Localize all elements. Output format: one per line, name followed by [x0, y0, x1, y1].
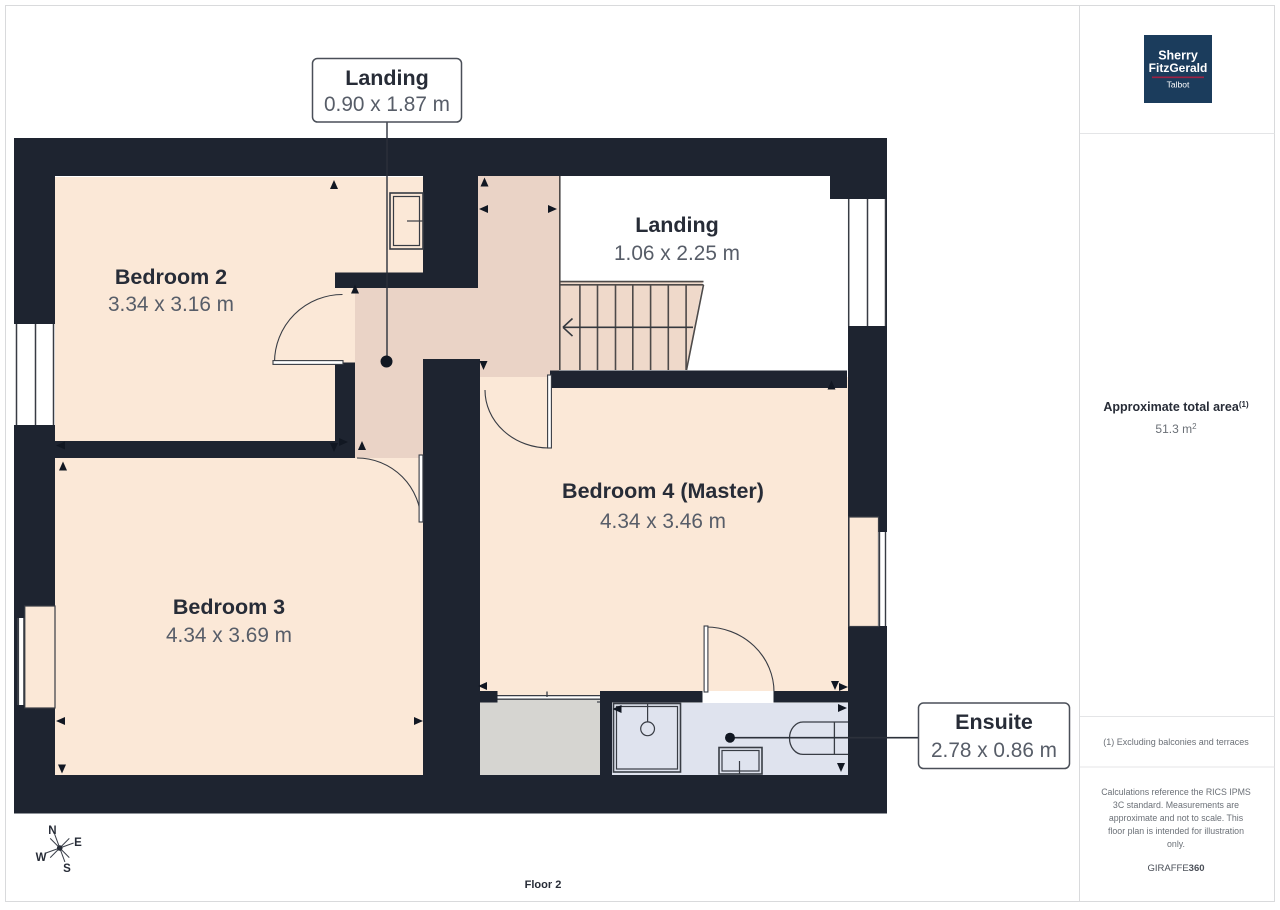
svg-text:FitzGerald: FitzGerald — [1149, 61, 1208, 75]
svg-text:Talbot: Talbot — [1167, 80, 1190, 90]
svg-text:(1) Excluding balconies and te: (1) Excluding balconies and terraces — [1103, 737, 1249, 747]
svg-text:2.78 x 0.86 m: 2.78 x 0.86 m — [931, 739, 1057, 762]
svg-text:51.3 m2: 51.3 m2 — [1155, 422, 1197, 436]
svg-text:4.34 x 3.69 m: 4.34 x 3.69 m — [166, 624, 292, 647]
svg-text:only.: only. — [1167, 839, 1185, 849]
svg-text:W: W — [36, 852, 47, 864]
svg-text:approximate and not to scale.: approximate and not to scale. This — [1109, 813, 1244, 823]
svg-text:Landing: Landing — [345, 66, 429, 90]
svg-text:Calculations reference the RIC: Calculations reference the RICS IPMS — [1101, 787, 1251, 797]
svg-text:E: E — [74, 837, 82, 849]
svg-text:floor plan is intended for ill: floor plan is intended for illustration — [1108, 826, 1244, 836]
svg-text:N: N — [48, 825, 56, 837]
svg-text:Bedroom 4 (Master): Bedroom 4 (Master) — [562, 479, 764, 503]
svg-text:S: S — [63, 863, 71, 875]
svg-text:Bedroom 2: Bedroom 2 — [115, 265, 227, 289]
svg-text:Ensuite: Ensuite — [955, 710, 1033, 734]
svg-text:GIRAFFE360: GIRAFFE360 — [1147, 863, 1204, 874]
svg-text:3C standard. Measurements are: 3C standard. Measurements are — [1113, 800, 1239, 810]
svg-text:1.06 x 2.25 m: 1.06 x 2.25 m — [614, 242, 740, 265]
svg-text:Landing: Landing — [635, 213, 719, 237]
svg-text:0.90 x 1.87 m: 0.90 x 1.87 m — [324, 93, 450, 116]
svg-text:Floor 2: Floor 2 — [525, 879, 562, 891]
svg-text:Approximate total area(1): Approximate total area(1) — [1103, 400, 1249, 414]
svg-text:3.34 x 3.16 m: 3.34 x 3.16 m — [108, 293, 234, 316]
svg-text:4.34 x 3.46 m: 4.34 x 3.46 m — [600, 510, 726, 533]
svg-text:Bedroom 3: Bedroom 3 — [173, 595, 285, 619]
